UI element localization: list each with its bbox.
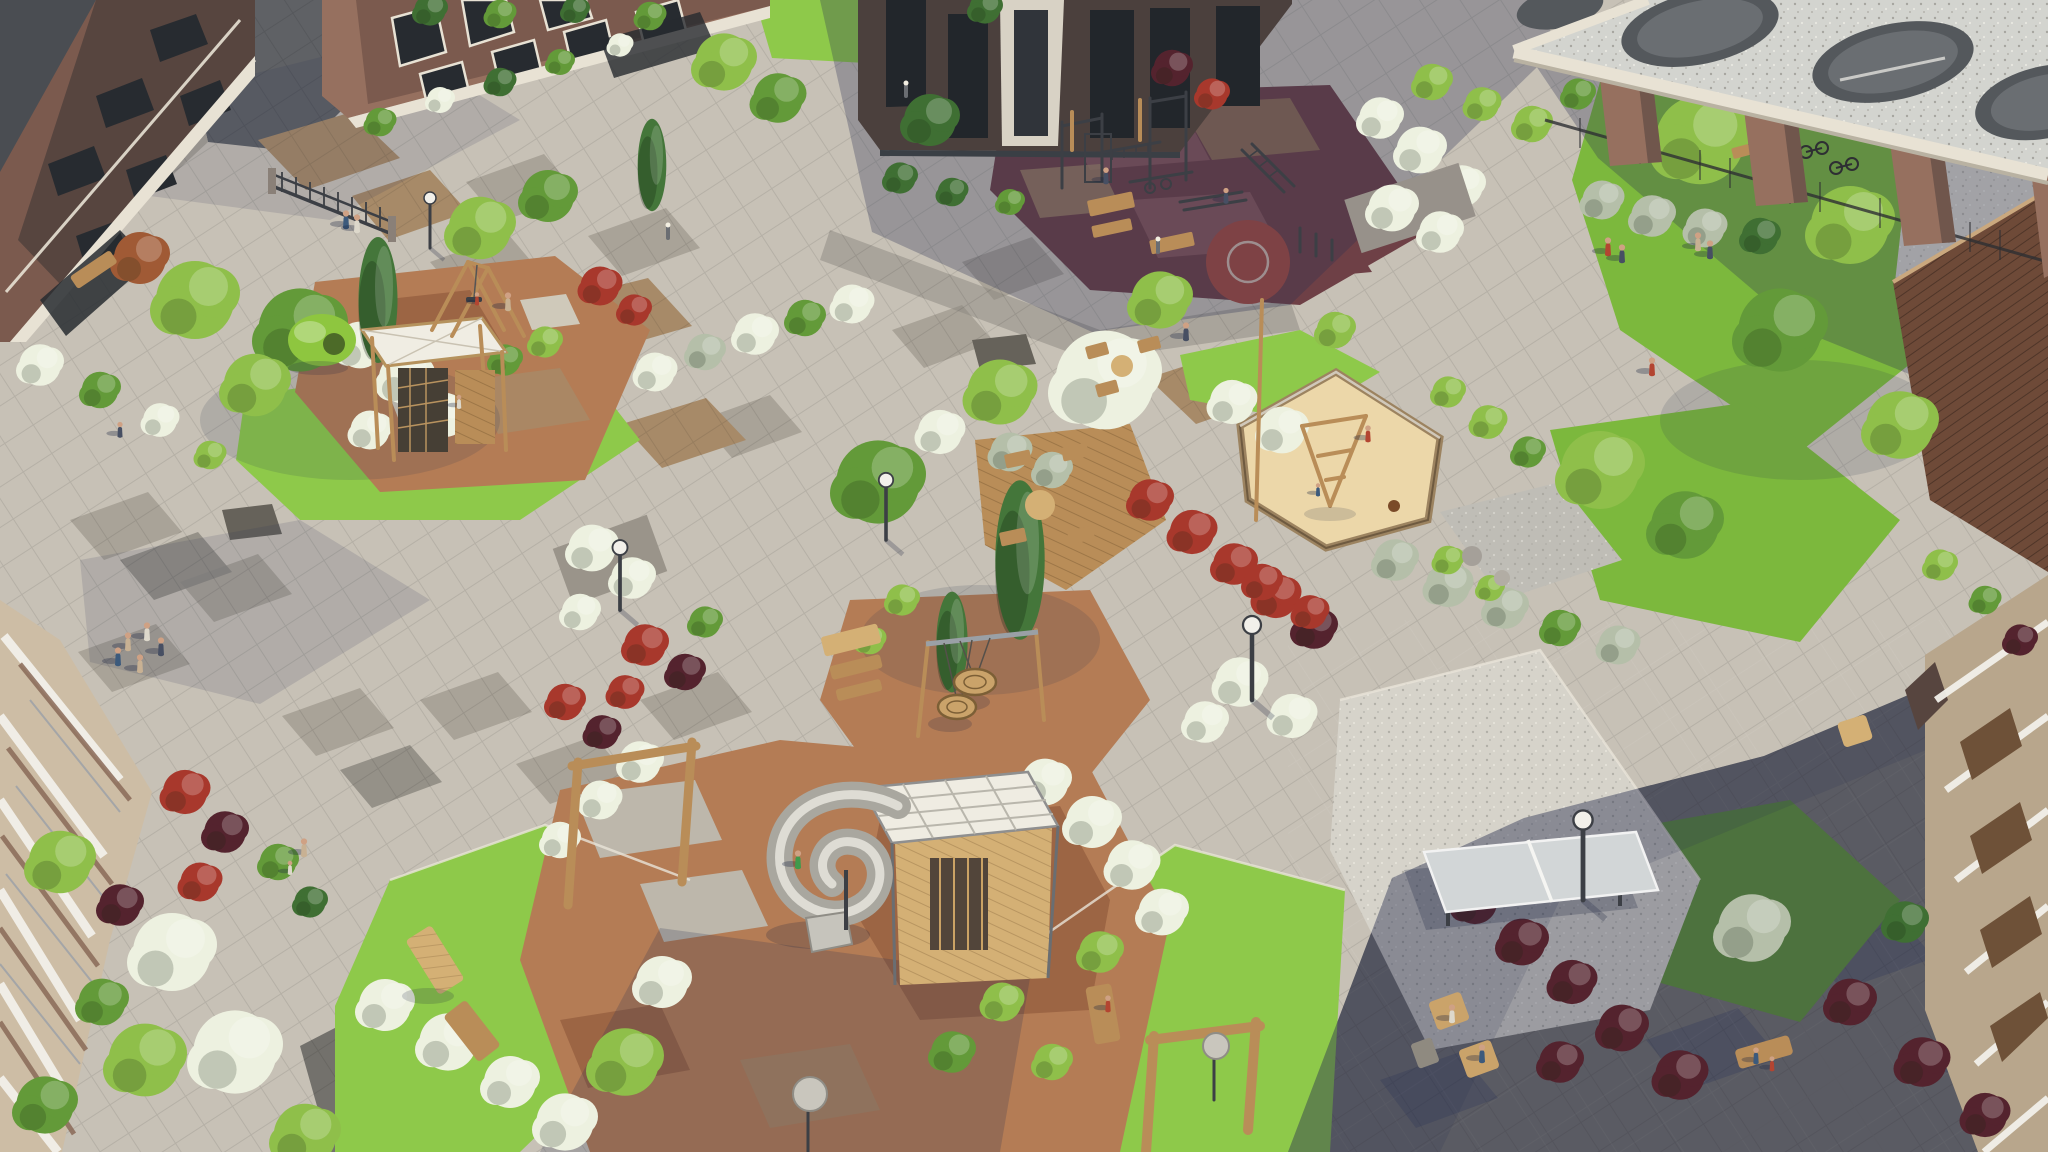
courtyard-aerial-rendering <box>0 0 2048 1152</box>
courtyard-scene <box>0 0 2048 1152</box>
bollard-light <box>1156 237 1161 253</box>
dog <box>1388 500 1400 512</box>
bollard-light <box>904 81 909 97</box>
bollard-light <box>666 223 671 239</box>
green-egg-play-pod <box>288 314 356 375</box>
